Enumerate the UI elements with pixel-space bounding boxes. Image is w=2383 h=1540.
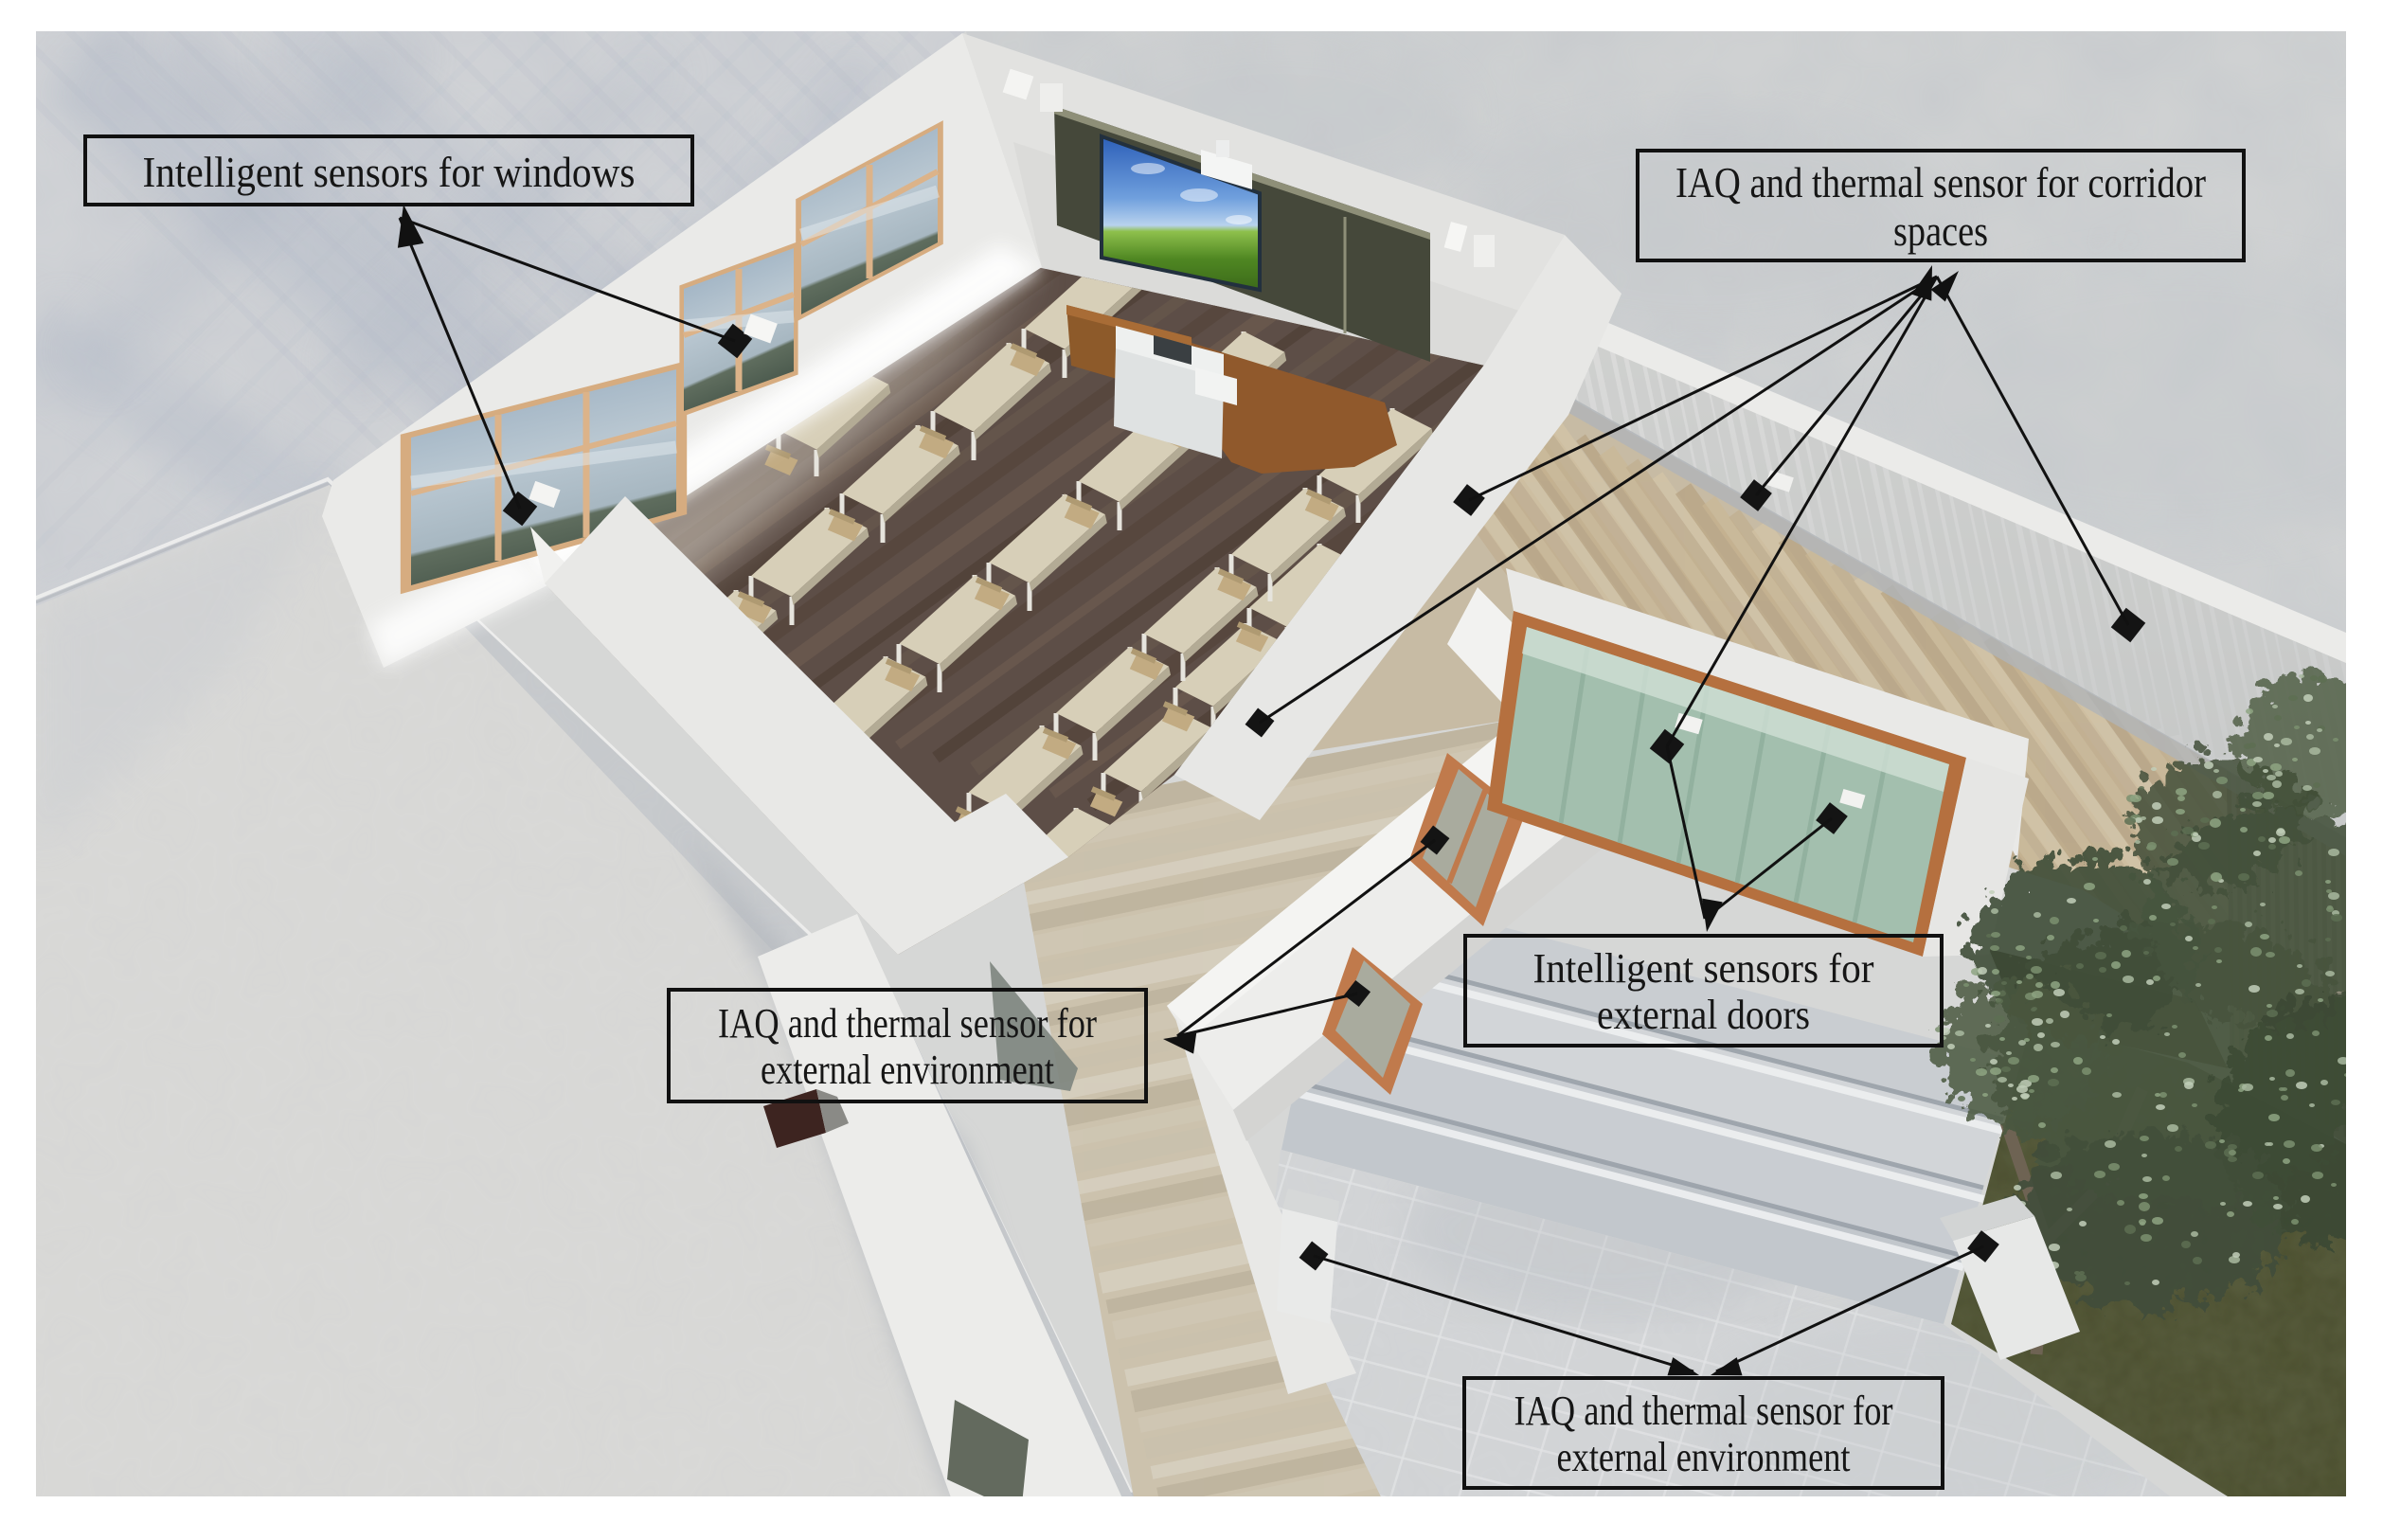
svg-text:external doors: external doors — [1597, 992, 1810, 1038]
svg-text:IAQ and thermal sensor for cor: IAQ and thermal sensor for corridor — [1675, 158, 2206, 206]
svg-text:spaces: spaces — [1893, 206, 1988, 255]
svg-text:IAQ and thermal sensor for: IAQ and thermal sensor for — [718, 1000, 1097, 1047]
svg-text:Intelligent sensors for windo: Intelligent sensors for windows — [143, 148, 636, 196]
svg-text:IAQ and thermal sensor for: IAQ and thermal sensor for — [1514, 1388, 1893, 1434]
svg-text:external environment: external environment — [1557, 1434, 1851, 1480]
svg-text:Intelligent sensors for: Intelligent sensors for — [1533, 945, 1874, 992]
svg-text:external environment: external environment — [761, 1047, 1054, 1093]
